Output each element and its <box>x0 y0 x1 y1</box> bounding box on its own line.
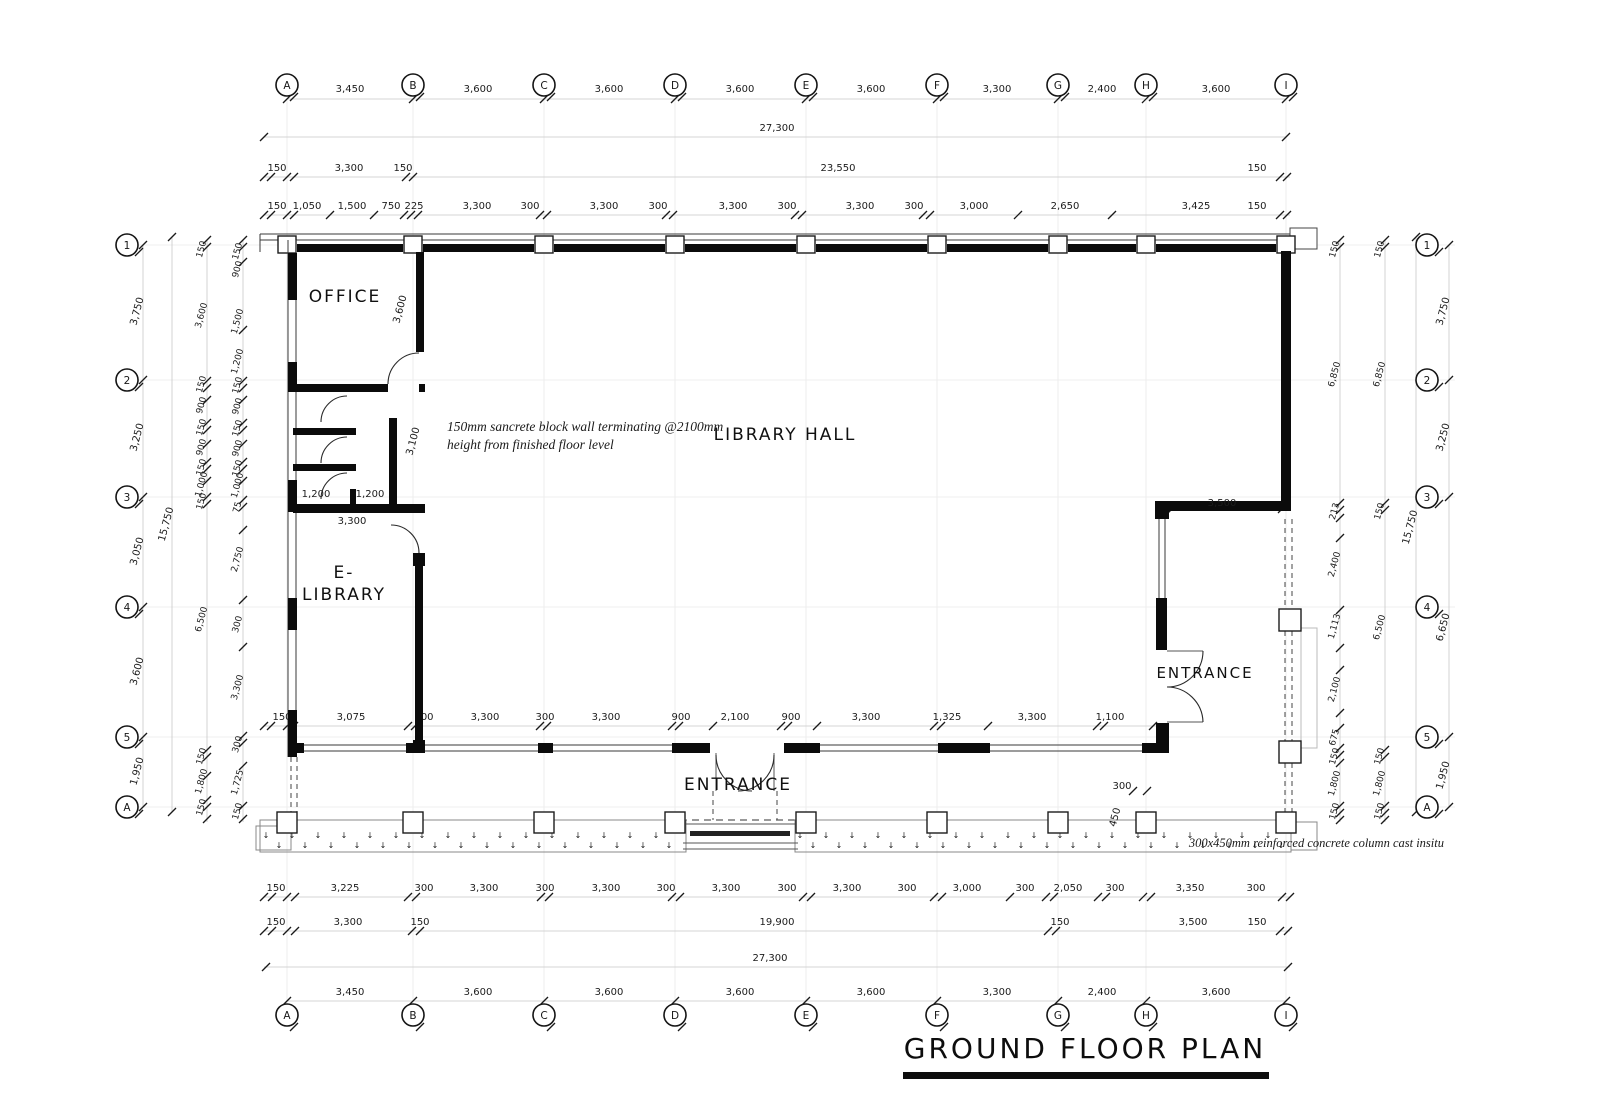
dimension-label: 900 <box>671 712 690 723</box>
dimension-label: 300 <box>656 883 675 894</box>
grid-bubble-label: 3 <box>124 492 131 504</box>
dimension-label: 3,300 <box>983 84 1012 95</box>
walkway-hatch-glyph: ↓ <box>1031 831 1038 840</box>
grid-bubble-label: 4 <box>124 602 131 614</box>
walkway-hatch-glyph: ↓ <box>901 831 908 840</box>
walkway-hatch-glyph: ↓ <box>888 841 895 850</box>
e-library-wall <box>391 525 425 753</box>
dimension-label: 150 <box>267 201 286 212</box>
dimension-label: 3,250 <box>1435 422 1453 453</box>
grid-bubble-label: A <box>283 80 291 92</box>
walkway-hatch-glyph: ↓ <box>940 841 947 850</box>
walkway-hatch-glyph: ↓ <box>562 841 569 850</box>
walkway-hatch-glyph: ↓ <box>627 831 634 840</box>
dimension-label: 3,425 <box>1182 201 1211 212</box>
grid-bubble-label: F <box>934 1010 940 1022</box>
dim-column-depth: 450 <box>1108 807 1124 828</box>
dimension-label: 3,600 <box>857 84 886 95</box>
walkway-hatch-glyph: ↓ <box>510 841 517 850</box>
walkway-hatch-glyph: ↓ <box>328 841 335 850</box>
walkway-hatch-glyph: ↓ <box>341 831 348 840</box>
walkway-hatch-glyph: ↓ <box>575 831 582 840</box>
dimension-label: 300 <box>520 201 539 212</box>
left-dimension-overall: 15,750 <box>157 506 177 543</box>
grid-bubble-label: 1 <box>124 240 131 252</box>
dim-toilet-depth: 3,100 <box>405 426 423 457</box>
walkway-hatch-glyph: ↓ <box>914 841 921 850</box>
grid-bubble-label: H <box>1142 1010 1150 1022</box>
dimension-label: 300 <box>535 883 554 894</box>
dim-wc-1: 1,200 <box>302 489 331 500</box>
dimension-label: 1,800 <box>1327 769 1343 797</box>
dimension-label: 150 <box>1247 917 1266 928</box>
dimension-label: 150 <box>1050 917 1069 928</box>
dimension-label: 1,800 <box>1372 769 1388 797</box>
dim-column-width: 300 <box>1112 781 1131 792</box>
dimension-label: 27,300 <box>760 123 795 134</box>
grid-bubble-label: 1 <box>1424 240 1431 252</box>
bottom-dimension-row-2: 1503,2253003,3003003,3003003,3003003,300… <box>266 883 1265 894</box>
grid-bubble-label: 5 <box>1424 732 1431 744</box>
dimension-label: 15,750 <box>157 506 177 543</box>
grid-bubble-label: A <box>283 1010 291 1022</box>
dimension-label: 1,325 <box>933 712 962 723</box>
floor-plan-sheet: 3,4503,6003,6003,6003,6003,3002,4003,600… <box>0 0 1600 1101</box>
grid-bubble-label: D <box>671 80 679 92</box>
dim-toilet-width: 3,300 <box>338 516 367 527</box>
dimension-label: 150 <box>1247 163 1266 174</box>
dimension-label: 6,650 <box>1435 612 1453 643</box>
bottom-dimension-inner: 1503,0753003,3003003,3009002,1009003,300… <box>272 712 1124 723</box>
walkway-hatch-glyph: ↓ <box>614 841 621 850</box>
top-dimension-overall: 27,300 <box>760 123 795 134</box>
dimension-label: 3,300 <box>590 201 619 212</box>
title-underline <box>903 1072 1269 1079</box>
walkway-hatch-glyph: ↓ <box>1122 841 1129 850</box>
grid-bubble-label: B <box>409 1010 416 1022</box>
dimension-label: 3,300 <box>712 883 741 894</box>
walkway-hatch-glyph: ↓ <box>836 841 843 850</box>
top-dimension-row-4: 1501,0501,5007502253,3003003,3003003,300… <box>267 201 1266 212</box>
room-label-entrance-east: ENTRANCE <box>1156 664 1253 682</box>
dim-tick <box>1143 787 1151 795</box>
drawing-title-block: GROUND FLOOR PLAN <box>903 1032 1269 1079</box>
dimension-label: 3,300 <box>1018 712 1047 723</box>
dimension-label: 300 <box>904 201 923 212</box>
right-dimension-mid: 1506,8501506,5001501,800150 <box>1372 240 1388 821</box>
walkway-hatch-glyph: ↓ <box>653 831 660 840</box>
dimension-label: 1,100 <box>1096 712 1125 723</box>
grid-bubble-label: G <box>1054 80 1062 92</box>
dimension-label: 3,600 <box>726 987 755 998</box>
walkway-hatch-glyph: ↓ <box>953 831 960 840</box>
dimension-label: 150 <box>410 917 429 928</box>
room-label-library-hall: LIBRARY HALL <box>714 425 857 445</box>
east-porch <box>1279 519 1317 850</box>
walkway-hatch-glyph: ↓ <box>367 831 374 840</box>
walkway-hatch-glyph: ↓ <box>666 841 673 850</box>
dim-entry-wall: 3,500 <box>1208 498 1237 509</box>
dimension-label: 300 <box>777 201 796 212</box>
dimension-label: 6,850 <box>1327 360 1343 388</box>
dimension-label: 900 <box>781 712 800 723</box>
walkway-hatch-glyph: ↓ <box>640 841 647 850</box>
dimension-label: 3,500 <box>1179 917 1208 928</box>
walkway-hatch-glyph: ↓ <box>966 841 973 850</box>
dimension-label: 1,200 <box>230 347 246 375</box>
dimension-label: 3,600 <box>857 987 886 998</box>
construction-grid <box>135 99 1455 1010</box>
walkway-hatch-glyph: ↓ <box>315 831 322 840</box>
grid-bubble-label: G <box>1054 1010 1062 1022</box>
dimension-label: 300 <box>777 883 796 894</box>
walkway-hatch-glyph: ↓ <box>1109 831 1116 840</box>
dimension-label: 2,050 <box>1054 883 1083 894</box>
bottom-dimension-row-grid: 3,4503,6003,6003,6003,6003,3002,4003,600 <box>336 987 1231 998</box>
walkway-hatch-glyph: ↓ <box>1174 841 1181 850</box>
grid-bubble-label: 2 <box>1424 375 1431 387</box>
dimension-label: 3,250 <box>129 422 147 453</box>
dimension-label: 27,300 <box>753 953 788 964</box>
walkway-hatch-glyph: ↓ <box>484 841 491 850</box>
dimension-label: 225 <box>404 201 423 212</box>
dimension-label: 19,900 <box>760 917 795 928</box>
walkway-hatch-glyph: ↓ <box>263 831 270 840</box>
dimension-label: 3,000 <box>960 201 989 212</box>
dimension-label: 3,600 <box>595 987 624 998</box>
walkway-hatch-glyph: ↓ <box>536 841 543 850</box>
dimension-label: 3,225 <box>331 883 360 894</box>
grid-bubble-label: 3 <box>1424 492 1431 504</box>
dimension-label: 300 <box>1105 883 1124 894</box>
bottom-dimension-row-3: 1503,30015019,9001503,500150 <box>266 917 1266 928</box>
grid-bubble-label: I <box>1284 80 1287 92</box>
dimension-label: 750 <box>381 201 400 212</box>
walkway-hatch-glyph: ↓ <box>979 831 986 840</box>
dimension-label: 3,600 <box>1202 84 1231 95</box>
dimension-label: 3,300 <box>470 883 499 894</box>
dimension-label: 15,750 <box>1401 509 1421 546</box>
grid-bubble-label: 2 <box>124 375 131 387</box>
note-concrete-column: 300x450mm reinforced concrete column cas… <box>1188 836 1444 850</box>
dimension-label: 3,600 <box>129 656 147 687</box>
grid-bubble-label: C <box>540 80 547 92</box>
dimension-label: 3,600 <box>194 301 210 329</box>
grid-bubble-label: F <box>934 80 940 92</box>
dimension-label: 3,300 <box>335 163 364 174</box>
walkway-hatch-glyph: ↓ <box>823 831 830 840</box>
dimension-label: 75 <box>232 501 245 515</box>
dimension-label: 300 <box>897 883 916 894</box>
walkway-hatch-glyph: ↓ <box>601 831 608 840</box>
walkway-hatch-glyph: ↓ <box>875 831 882 840</box>
walkway-hatch-glyph: ↓ <box>471 831 478 840</box>
south-walkway: ↓↓↓↓↓↓↓↓↓↓↓↓↓↓↓↓↓↓↓↓↓↓↓↓↓↓↓↓↓↓↓↓ ↓↓↓↓↓↓↓… <box>256 757 1296 852</box>
dimension-label: 3,750 <box>1435 296 1453 327</box>
left-dimension-chain-3: 1503,6001509001509001501,0001506,5001501… <box>194 240 210 817</box>
walkway-hatch-glyph: ↓ <box>1083 831 1090 840</box>
grid-bubble-label: B <box>409 80 416 92</box>
dimension-label: 6,850 <box>1372 360 1388 388</box>
dimension-label: 300 <box>414 883 433 894</box>
walkway-hatch-glyph: ↓ <box>523 831 530 840</box>
grid-bubble-label: 4 <box>1424 602 1431 614</box>
dimension-label: 3,300 <box>334 917 363 928</box>
dimension-label: 3,350 <box>1176 883 1205 894</box>
drawing-title: GROUND FLOOR PLAN <box>904 1032 1266 1065</box>
dimension-label: 2,750 <box>230 545 246 573</box>
dimension-label: 1,800 <box>194 767 210 795</box>
dimension-label: 3,300 <box>471 712 500 723</box>
dimension-label: 3,300 <box>230 673 246 701</box>
right-dimension-outer: 3,7503,2506,6501,950 <box>1435 296 1453 791</box>
entrance-door-east <box>1167 651 1203 722</box>
bottom-dimension-overall: 27,300 <box>753 953 788 964</box>
dimension-label: 3,600 <box>726 84 755 95</box>
walkway-hatch-glyph: ↓ <box>1005 831 1012 840</box>
dimension-label: 3,300 <box>846 201 875 212</box>
walkway-hatch-glyph: ↓ <box>445 831 452 840</box>
grid-bubble-label: C <box>540 1010 547 1022</box>
walkway-hatch-glyph: ↓ <box>497 831 504 840</box>
dimension-label: 3,300 <box>852 712 881 723</box>
walkway-hatch-glyph: ↓ <box>1161 831 1168 840</box>
dimension-label: 2,400 <box>1088 987 1117 998</box>
dim-wc-2: 1,200 <box>356 489 385 500</box>
floor-plan-drawing: 3,4503,6003,6003,6003,6003,3002,4003,600… <box>0 0 1600 1101</box>
walkway-hatch-glyph: ↓ <box>810 841 817 850</box>
dimension-label: 2,650 <box>1051 201 1080 212</box>
walkway-hatch-glyph: ↓ <box>276 841 283 850</box>
dimension-label: 150 <box>266 883 285 894</box>
walkway-hatch-glyph: ↓ <box>1148 841 1155 850</box>
dimension-label: 3,600 <box>464 84 493 95</box>
dimension-label: 23,550 <box>821 163 856 174</box>
walkway-hatch-glyph: ↓ <box>588 841 595 850</box>
dimension-label: 1,500 <box>338 201 367 212</box>
dimension-label: 6,500 <box>1372 613 1388 641</box>
dimension-label: 300 <box>648 201 667 212</box>
grid-bubble-label: H <box>1142 80 1150 92</box>
dimension-label: 150 <box>267 163 286 174</box>
dimension-label: 3,300 <box>463 201 492 212</box>
note-block-wall-line1: 150mm sancrete block wall terminating @2… <box>447 419 724 434</box>
dimension-ticks <box>139 95 1453 1005</box>
walkway-hatch-glyph: ↓ <box>354 841 361 850</box>
dimension-label: 1,500 <box>230 307 246 335</box>
dimension-label: 2,100 <box>1327 675 1343 703</box>
walkway-hatch-glyph: ↓ <box>432 841 439 850</box>
dimension-label: 3,300 <box>983 987 1012 998</box>
room-label-entrance-south: ENTRANCE <box>684 775 792 795</box>
west-wall <box>288 240 297 757</box>
walkway-hatch-glyph: ↓ <box>1044 841 1051 850</box>
dimension-label: 3,300 <box>592 883 621 894</box>
dimension-label: 150 <box>1247 201 1266 212</box>
grid-bubble-label: A <box>1423 802 1431 814</box>
walkway-hatch-glyph: ↓ <box>380 841 387 850</box>
dimension-label: 300 <box>1246 883 1265 894</box>
dimension-label: 3,450 <box>336 84 365 95</box>
dimension-label: 2,100 <box>721 712 750 723</box>
dimension-label: 3,300 <box>592 712 621 723</box>
grid-bubble-label: A <box>123 802 131 814</box>
walkway-hatch-glyph: ↓ <box>458 841 465 850</box>
dimension-label: 3,750 <box>129 296 147 327</box>
north-wall <box>260 228 1317 253</box>
right-dimension-overall: 15,750 <box>1401 509 1421 546</box>
dimension-label: 3,000 <box>953 883 982 894</box>
walkway-hatch-glyph: ↓ <box>849 831 856 840</box>
dimension-label: 1,050 <box>293 201 322 212</box>
dimension-label: 1,113 <box>1327 613 1343 640</box>
dimension-label: 1,725 <box>230 769 246 796</box>
top-dimension-row-grid: 3,4503,6003,6003,6003,6003,3002,4003,600 <box>336 84 1231 95</box>
dimension-label: 300 <box>535 712 554 723</box>
room-label-e-library-line2: LIBRARY <box>302 585 386 605</box>
top-dimension-row-3: 1503,30015023,550150 <box>267 163 1266 174</box>
walkway-hatch-glyph: ↓ <box>302 841 309 850</box>
grid-bubble-label: E <box>803 80 810 92</box>
right-dimension-inner: 1506,8502132,4001,1132,1006751501,800150 <box>1327 240 1343 821</box>
room-label-office: OFFICE <box>309 287 382 307</box>
walkway-hatch-glyph: ↓ <box>1018 841 1025 850</box>
grid-bubble-label: I <box>1284 1010 1287 1022</box>
dimension-label: 1,950 <box>1435 760 1453 791</box>
dimension-label: 2,400 <box>1088 84 1117 95</box>
note-block-wall-line2: height from finished floor level <box>447 437 614 452</box>
dimension-label: 3,600 <box>464 987 493 998</box>
walkway-hatch-glyph: ↓ <box>862 841 869 850</box>
walkway-hatch-glyph: ↓ <box>1070 841 1077 850</box>
dimension-label: 3,075 <box>337 712 366 723</box>
dimension-label: 300 <box>1015 883 1034 894</box>
room-label-e-library-line1: E- <box>334 563 355 583</box>
dimension-label: 3,300 <box>833 883 862 894</box>
dimension-label: 6,500 <box>194 605 210 633</box>
grid-bubble-label: E <box>803 1010 810 1022</box>
walkway-hatch-glyph: ↓ <box>393 831 400 840</box>
dimension-label: 3,050 <box>129 536 147 567</box>
grid-bubbles-top: ABCDEFGHI <box>276 74 1297 101</box>
dimension-label: 2,400 <box>1327 550 1343 578</box>
grid-bubble-label: D <box>671 1010 679 1022</box>
dimension-label: 3,600 <box>1202 987 1231 998</box>
dimension-label: 3,450 <box>336 987 365 998</box>
grid-bubbles-bottom: ABCDEFGHI <box>276 1004 1297 1031</box>
dim-office-depth: 3,600 <box>392 294 410 325</box>
dimension-label: 3,600 <box>595 84 624 95</box>
dimension-label: 1,950 <box>129 756 147 787</box>
grid-bubble-label: 5 <box>124 732 131 744</box>
walkway-hatch-glyph: ↓ <box>992 841 999 850</box>
dimension-label: 150 <box>393 163 412 174</box>
walkway-hatch-glyph: ↓ <box>406 841 413 850</box>
walkway-hatch-glyph: ↓ <box>1096 841 1103 850</box>
dimension-label: 150 <box>266 917 285 928</box>
dimension-label: 3,300 <box>719 201 748 212</box>
